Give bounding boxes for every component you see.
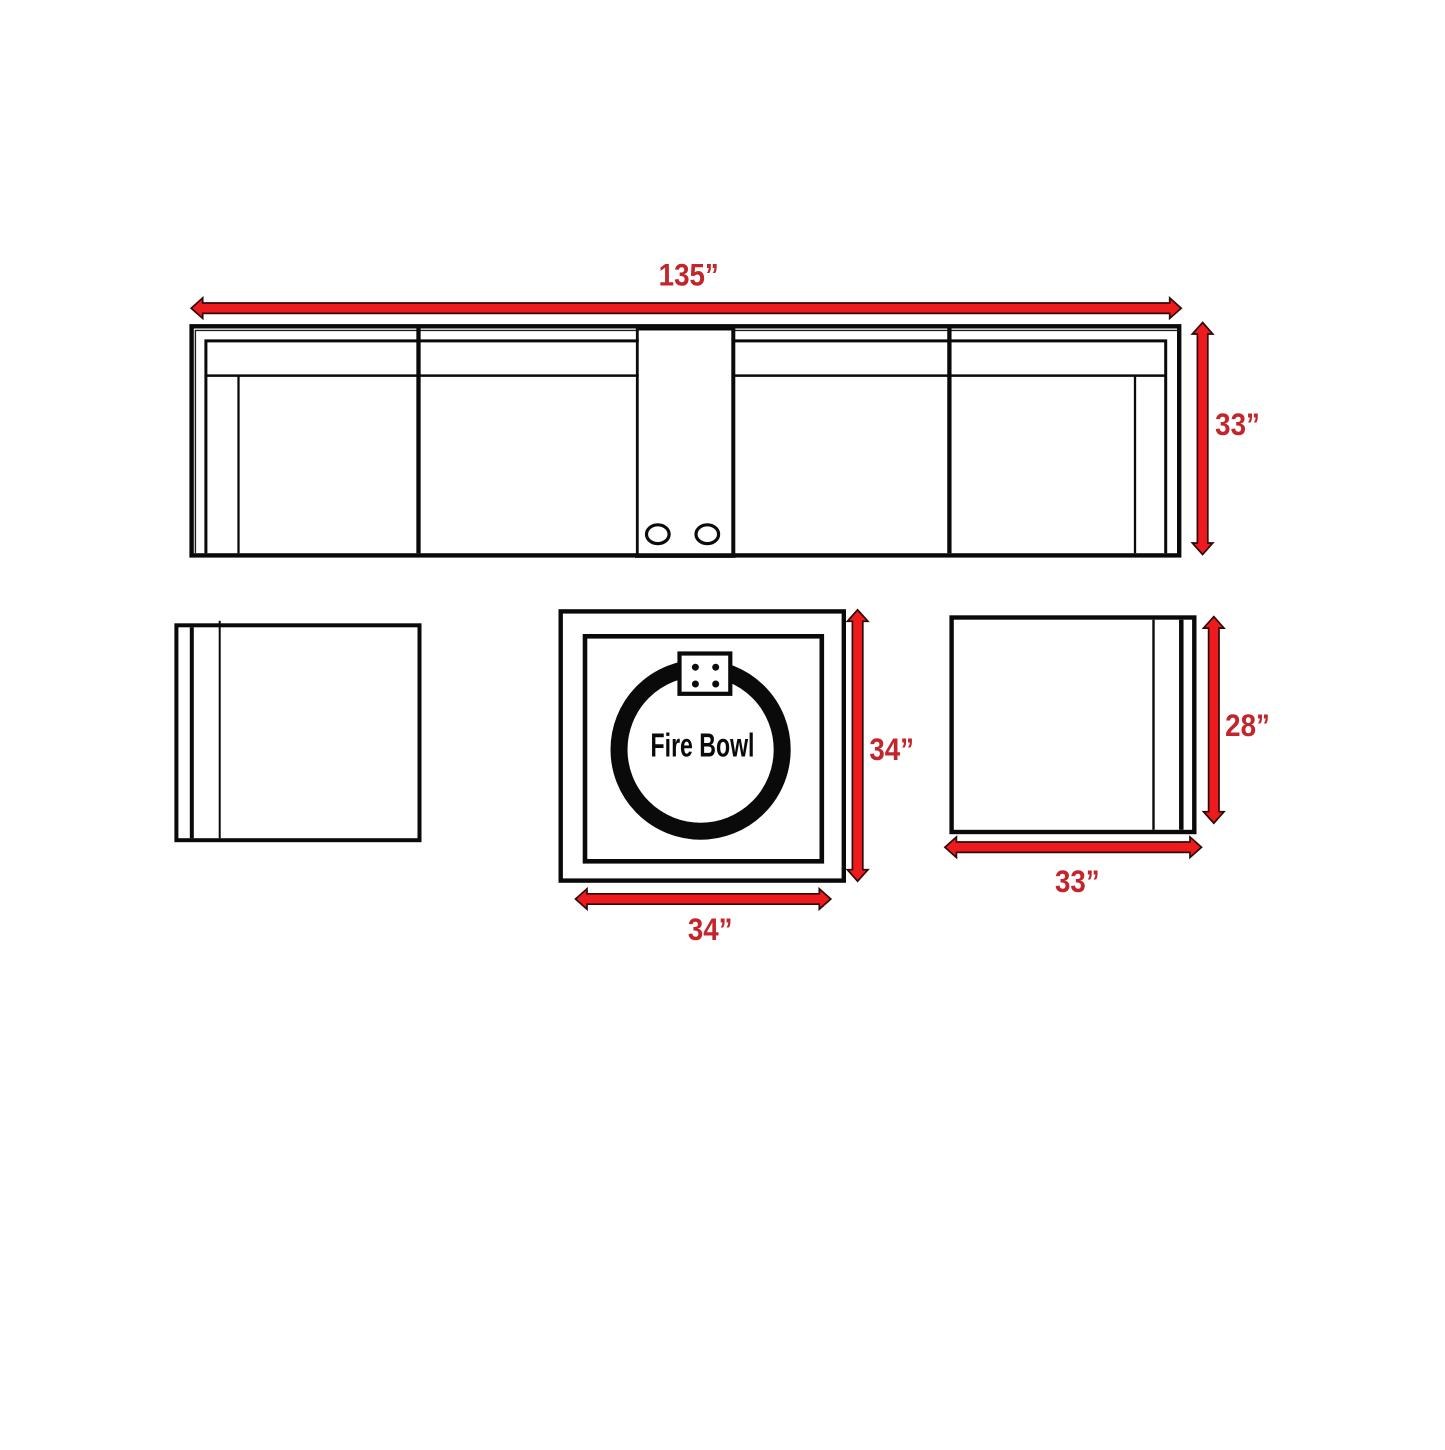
svg-text:28”: 28” (1225, 708, 1270, 743)
svg-text:Fire Bowl: Fire Bowl (651, 728, 755, 765)
svg-text:33”: 33” (1215, 407, 1260, 442)
svg-text:34”: 34” (869, 732, 914, 767)
svg-text:135”: 135” (659, 258, 719, 293)
svg-text:34”: 34” (688, 912, 733, 947)
svg-text:33”: 33” (1055, 864, 1100, 899)
